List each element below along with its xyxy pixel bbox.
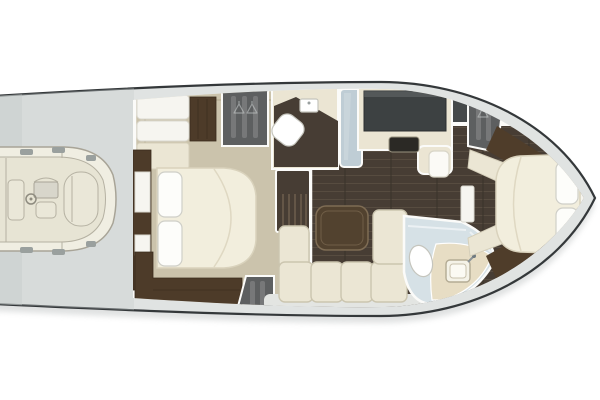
pillow xyxy=(158,221,182,266)
hanging-locker xyxy=(222,89,268,146)
nightstand xyxy=(461,186,474,222)
sofa-cushion xyxy=(311,262,343,302)
galley-cabinet xyxy=(429,151,449,177)
aft-bed xyxy=(157,168,256,268)
faucet-dot xyxy=(308,102,311,105)
tender-console xyxy=(34,182,58,198)
mid-head xyxy=(268,87,338,169)
sofa-cushion xyxy=(279,262,313,302)
cooktop-icon xyxy=(389,137,419,152)
tender-helm-seat xyxy=(36,202,56,218)
side-shelf-upper xyxy=(135,172,150,212)
tender-bow-pad xyxy=(64,172,98,226)
tender xyxy=(0,147,116,255)
floorplan-canvas xyxy=(0,0,600,400)
steering-wheel-hub xyxy=(30,198,33,201)
tender-stern-seat xyxy=(8,180,24,220)
settee-seat xyxy=(137,121,189,141)
pillow xyxy=(158,172,182,217)
companionway-stairs xyxy=(276,170,310,232)
yacht-floorplan xyxy=(0,0,600,400)
sofa-cushion xyxy=(341,262,373,302)
wardrobe xyxy=(190,97,216,141)
sofa-cushion xyxy=(371,262,407,302)
sink-icon xyxy=(300,99,318,112)
sofa-cushion xyxy=(373,210,407,264)
